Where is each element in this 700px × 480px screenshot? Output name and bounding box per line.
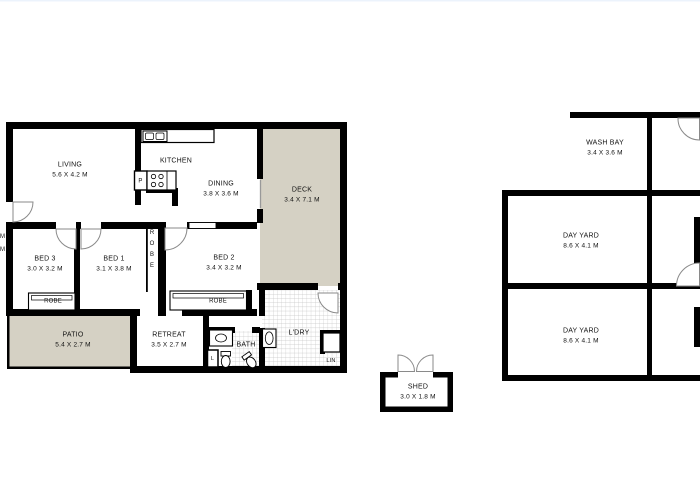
shed-structure [380, 370, 453, 412]
page-top-edge [0, 0, 700, 2]
entry-door-arc [13, 202, 33, 222]
burner-icon [151, 182, 155, 186]
stove-cooktop [147, 171, 176, 190]
shed-door-right-arc [417, 355, 434, 372]
burner-icon [159, 174, 163, 178]
patio-area [7, 312, 131, 368]
linen-small-box [208, 350, 219, 367]
burner-icon [151, 174, 155, 178]
deck-area [260, 126, 343, 286]
bed3-door-arc [56, 229, 76, 249]
floorplan-page: LIVING 5.6 X 4.2 M KITCHEN DINING 3.8 X … [0, 0, 700, 480]
bed2-window [189, 223, 216, 229]
floorplan-drawing [0, 0, 700, 480]
toilet-icon [221, 356, 230, 368]
linen-closet-box [323, 333, 340, 352]
stable-top-door-arc [678, 118, 700, 140]
bed1-door-arc [81, 229, 101, 249]
shed-door-left-arc [398, 355, 415, 372]
stable-mid-door-arc [677, 263, 700, 286]
pantry-box [135, 171, 148, 190]
bed2-door-arc [165, 228, 187, 250]
stable-walls [502, 112, 700, 381]
burner-icon [159, 182, 163, 186]
